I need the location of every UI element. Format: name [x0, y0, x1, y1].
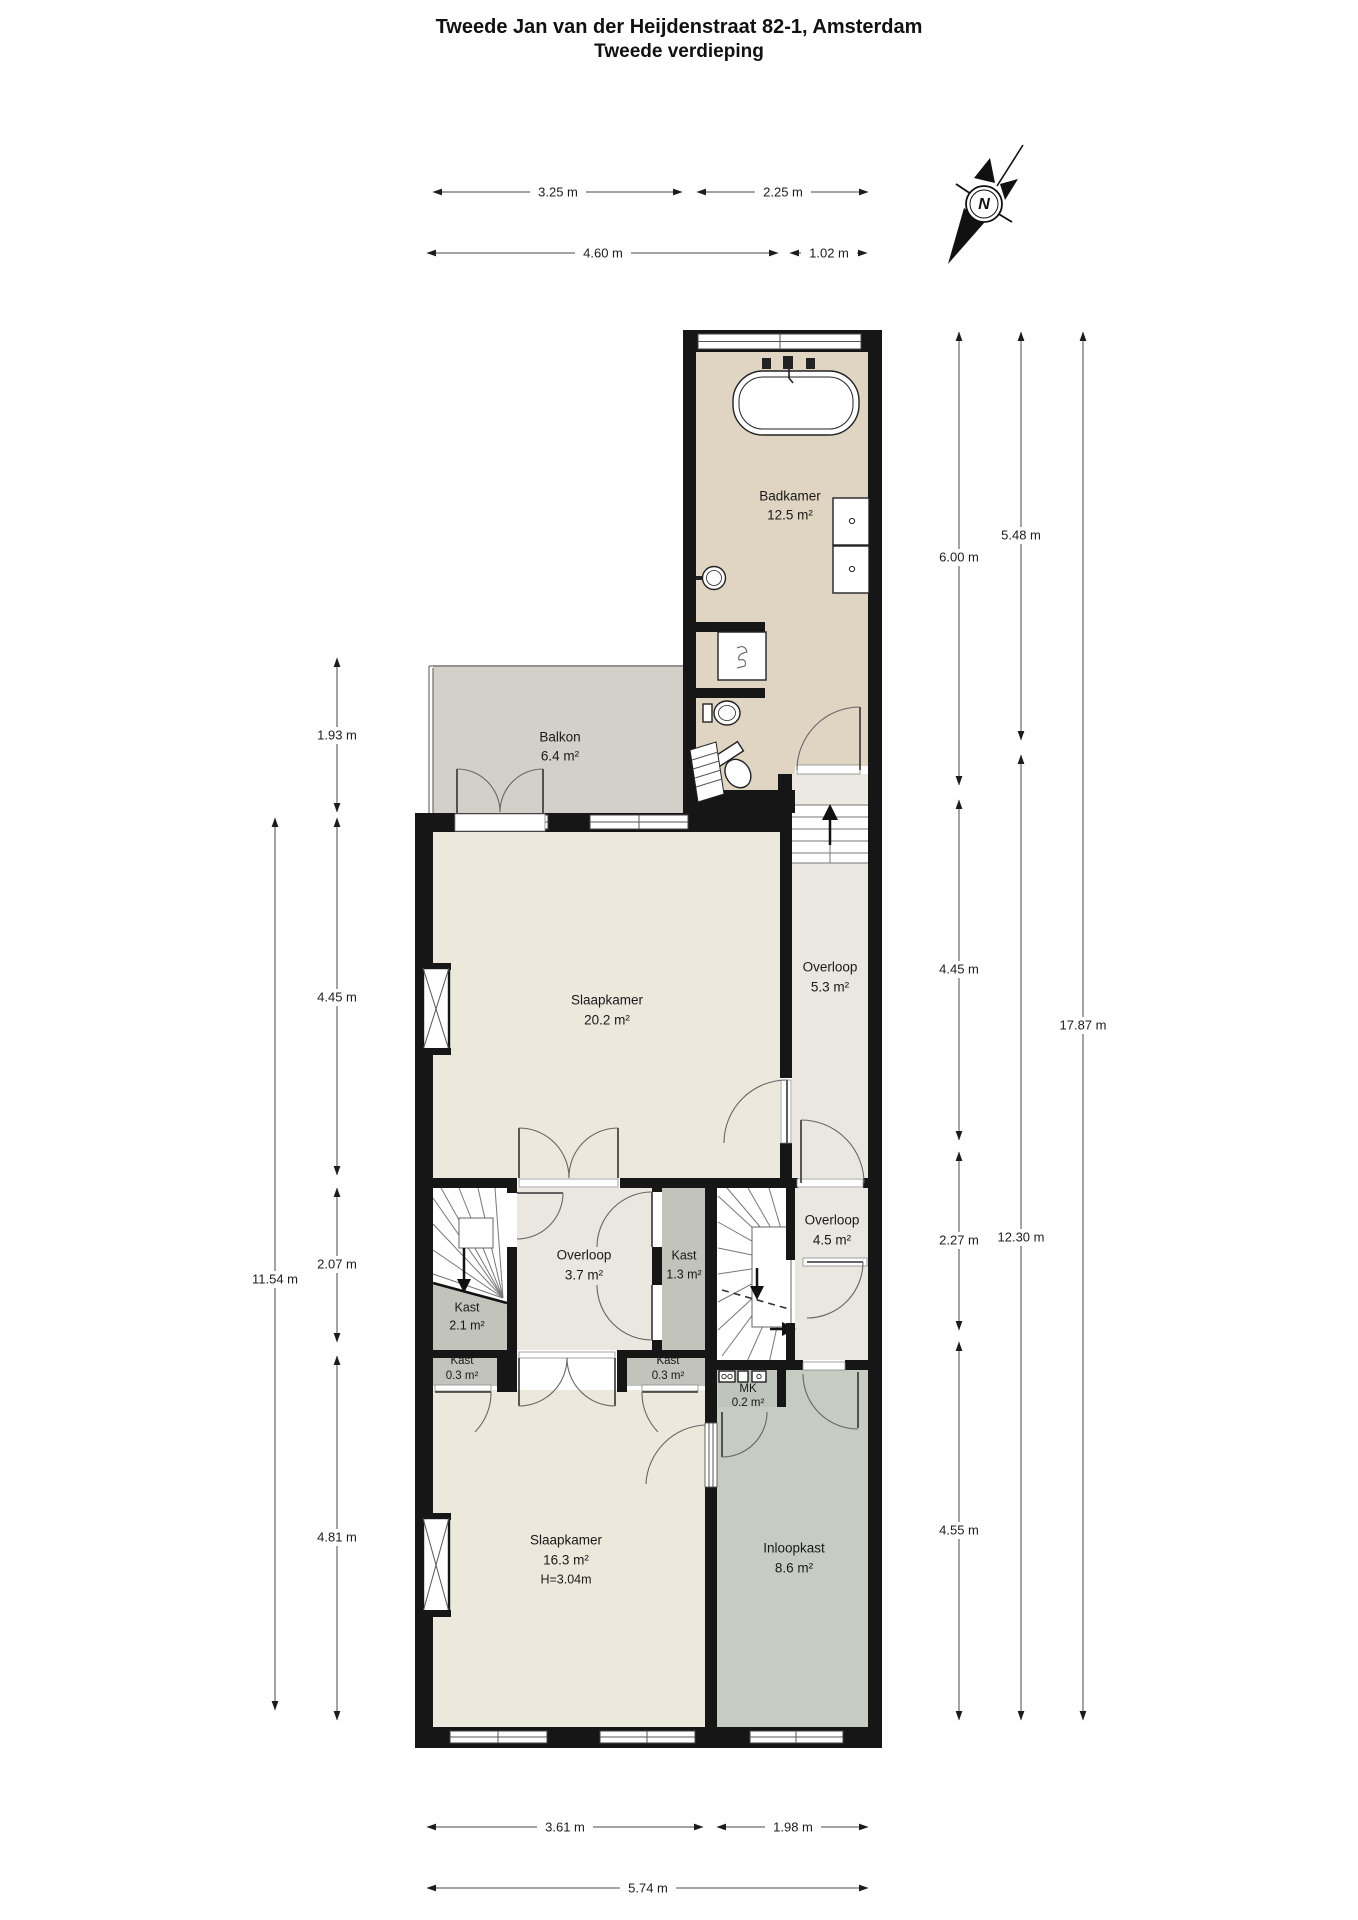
svg-text:Overloop: Overloop	[805, 1213, 860, 1228]
window-slaapkamer20-right	[590, 815, 688, 829]
washer-dryer-stack-icon	[833, 498, 869, 593]
svg-text:Slaapkamer: Slaapkamer	[530, 1533, 603, 1548]
dim-bottom-5-74: 5.74 m	[427, 1880, 868, 1897]
dim-top-3-25: 3.25 m	[433, 184, 682, 201]
threshold-inloopkast-door	[803, 1362, 845, 1370]
svg-text:4.55 m: 4.55 m	[939, 1522, 979, 1537]
window-bottom-left	[450, 1731, 547, 1743]
dim-left-4-45: 4.45 m	[309, 818, 365, 1175]
threshold-kast-left	[435, 1385, 491, 1391]
svg-text:Kast: Kast	[671, 1248, 697, 1262]
svg-text:4.45 m: 4.45 m	[317, 989, 357, 1004]
svg-text:17.87 m: 17.87 m	[1060, 1017, 1107, 1032]
window-bottom-right	[750, 1731, 843, 1743]
svg-text:MK: MK	[739, 1383, 757, 1395]
dim-left-2-07: 2.07 m	[309, 1188, 365, 1342]
svg-text:Kast: Kast	[656, 1355, 680, 1367]
toilet-icon	[703, 701, 740, 725]
floorplan-canvas: N 3.25 m 2.25 m 4.60 m	[0, 0, 1358, 1920]
svg-text:5.74 m: 5.74 m	[628, 1880, 668, 1895]
svg-text:16.3 m²: 16.3 m²	[543, 1553, 589, 1568]
threshold-overloop-door	[781, 1080, 791, 1143]
svg-text:6.4 m²: 6.4 m²	[541, 749, 580, 764]
threshold-balcony-doors	[455, 814, 545, 831]
svg-text:5.48 m: 5.48 m	[1001, 527, 1041, 542]
dim-left-1-93: 1.93 m	[309, 658, 365, 812]
svg-text:5.3 m²: 5.3 m²	[811, 980, 850, 995]
compass-north-label: N	[978, 196, 990, 213]
svg-text:12.5 m²: 12.5 m²	[767, 508, 813, 523]
svg-text:11.54 m: 11.54 m	[252, 1271, 298, 1286]
floorplan-page: Tweede Jan van der Heijdenstraat 82-1, A…	[0, 0, 1358, 1920]
svg-text:3.61 m: 3.61 m	[545, 1819, 585, 1834]
svg-text:20.2 m²: 20.2 m²	[584, 1013, 630, 1028]
room-fills	[433, 352, 868, 1727]
svg-text:1.98 m: 1.98 m	[773, 1819, 813, 1834]
overloop-5-3-room	[792, 863, 868, 1178]
svg-text:2.27 m: 2.27 m	[939, 1232, 979, 1247]
svg-text:12.30 m: 12.30 m	[998, 1229, 1045, 1244]
svg-text:Kast: Kast	[450, 1355, 474, 1367]
svg-text:6.00 m: 6.00 m	[939, 549, 979, 564]
svg-text:4.45 m: 4.45 m	[939, 961, 979, 976]
dim-right-4-55: 4.55 m	[931, 1342, 987, 1720]
threshold-slaapkamer20-doors	[519, 1179, 618, 1187]
svg-text:0.2 m²: 0.2 m²	[732, 1397, 765, 1409]
svg-text:1.93 m: 1.93 m	[317, 727, 357, 742]
dim-right-6-00: 6.00 m	[931, 332, 987, 785]
shower-icon	[718, 632, 766, 680]
threshold-overloop45-door	[797, 1179, 863, 1187]
svg-text:Overloop: Overloop	[803, 960, 858, 975]
dim-bottom-1-98: 1.98 m	[717, 1819, 868, 1836]
dim-right-12-30: 12.30 m	[989, 755, 1053, 1720]
svg-text:Balkon: Balkon	[539, 730, 580, 745]
svg-text:4.5 m²: 4.5 m²	[813, 1233, 852, 1248]
svg-text:8.6 m²: 8.6 m²	[775, 1561, 814, 1576]
dim-right-4-45: 4.45 m	[931, 800, 987, 1140]
compass-rose: N	[948, 145, 1023, 264]
svg-text:2.25 m: 2.25 m	[763, 184, 803, 199]
dim-left-11-54: 11.54 m	[243, 818, 307, 1710]
dim-top-4-60: 4.60 m	[427, 245, 778, 262]
svg-text:Kast: Kast	[454, 1300, 480, 1314]
threshold-kast-right	[642, 1385, 698, 1391]
dim-right-17-87: 17.87 m	[1051, 332, 1115, 1720]
svg-text:Inloopkast: Inloopkast	[763, 1541, 825, 1556]
dim-top-1-02: 1.02 m	[790, 245, 867, 262]
svg-text:Overloop: Overloop	[557, 1248, 612, 1263]
svg-text:H=3.04m: H=3.04m	[540, 1572, 591, 1586]
dim-right-5-48: 5.48 m	[993, 332, 1049, 740]
dim-top-2-25: 2.25 m	[697, 184, 868, 201]
window-badkamer	[698, 334, 861, 349]
svg-text:1.02 m: 1.02 m	[809, 245, 849, 260]
window-bottom-middle	[600, 1731, 695, 1743]
svg-text:2.07 m: 2.07 m	[317, 1256, 357, 1271]
meter-boxes-icon	[719, 1371, 766, 1382]
dim-bottom-3-61: 3.61 m	[427, 1819, 703, 1836]
stair-landing	[785, 774, 868, 805]
dim-right-2-27: 2.27 m	[931, 1152, 987, 1330]
threshold-badkamer-door	[797, 765, 860, 774]
dim-left-4-81: 4.81 m	[309, 1356, 365, 1720]
svg-text:0.3 m²: 0.3 m²	[652, 1370, 685, 1382]
svg-text:Badkamer: Badkamer	[759, 489, 821, 504]
svg-text:4.81 m: 4.81 m	[317, 1529, 357, 1544]
shaft-box-lower	[421, 1513, 451, 1617]
svg-text:0.3 m²: 0.3 m²	[446, 1370, 479, 1382]
shaft-box-upper	[421, 963, 451, 1055]
svg-text:4.60 m: 4.60 m	[583, 245, 623, 260]
svg-text:1.3 m²: 1.3 m²	[666, 1267, 701, 1281]
svg-text:3.25 m: 3.25 m	[538, 184, 578, 199]
svg-text:Slaapkamer: Slaapkamer	[571, 993, 644, 1008]
svg-text:2.1 m²: 2.1 m²	[449, 1318, 484, 1332]
threshold-overloop37-doors	[519, 1352, 615, 1358]
svg-text:3.7 m²: 3.7 m²	[565, 1268, 604, 1283]
